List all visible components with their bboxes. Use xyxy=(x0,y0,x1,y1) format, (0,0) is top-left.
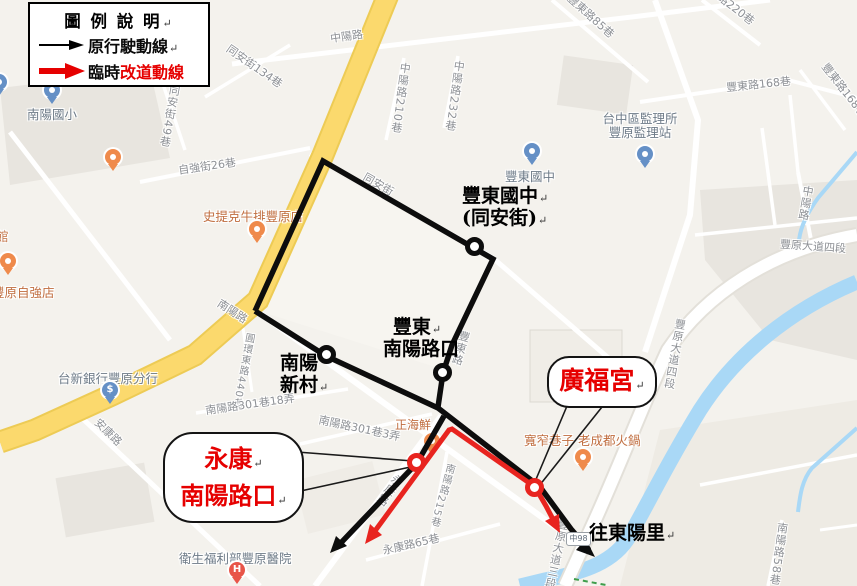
callout-yongkang-nanyang: 永康↵ 南陽路口↵ xyxy=(163,432,304,523)
direction-label-dongyangli: 往東陽里↵ xyxy=(589,522,675,544)
route-overlay xyxy=(0,0,857,586)
road-shield: 中98 xyxy=(566,532,591,546)
bus-stop-marker xyxy=(465,237,484,256)
map-canvas[interactable]: 中陽路 中陽路210巷 中陽路232巷 同安街134巷 同安街49巷 自強街26… xyxy=(0,0,857,586)
detour-stop-marker xyxy=(525,478,544,497)
legend-title: 圖 例 說 明↵ xyxy=(30,8,208,32)
paragraph-mark: ↵ xyxy=(538,214,547,227)
paragraph-mark: ↵ xyxy=(319,381,328,394)
stop-label-fengdong-nanyang: 豐東↵ 南陽路口 xyxy=(383,316,451,360)
callout-guangfu-temple: 廣福宮↵ xyxy=(547,356,657,408)
stop-label-fengdong-school: 豐東國中↵ (同安街)↵ xyxy=(462,185,548,229)
legend-box: 圖 例 說 明↵ 原行駛動線↵ 臨時改道動線 xyxy=(28,2,210,87)
red-arrow-icon xyxy=(36,62,88,80)
paragraph-mark: ↵ xyxy=(169,42,178,55)
black-arrow-icon xyxy=(36,37,88,53)
detour-stop-marker xyxy=(407,453,426,472)
paragraph-mark: ↵ xyxy=(277,494,286,507)
paragraph-mark: ↵ xyxy=(635,379,644,392)
paragraph-mark: ↵ xyxy=(163,17,174,30)
paragraph-mark: ↵ xyxy=(666,529,675,542)
paragraph-mark: ↵ xyxy=(253,457,262,470)
paragraph-mark: ↵ xyxy=(539,192,548,205)
legend-original-route: 原行駛動線↵ xyxy=(30,32,208,58)
paragraph-mark: ↵ xyxy=(432,323,441,336)
stop-label-nanyang-village: 南陽 新村↵ xyxy=(280,352,328,396)
bus-stop-marker xyxy=(433,363,452,382)
legend-detour-route: 臨時改道動線 xyxy=(30,58,208,84)
